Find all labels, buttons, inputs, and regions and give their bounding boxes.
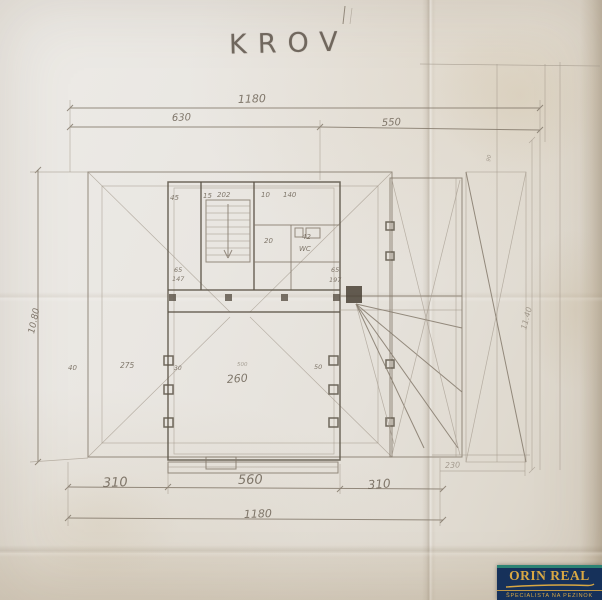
label-dim-top-left: 630 [172,112,191,124]
chimney [346,286,362,303]
agency-watermark: ORIN REAL ŠPECIALISTA NA PEZINOK [497,565,602,600]
blueprint-photo: KROV [0,0,602,600]
label-dim-room-202: 202 [217,191,231,199]
corridor-band [168,290,462,312]
label-dim-top-total: 1180 [238,92,266,106]
label-dim-bottom-mid: 560 [238,473,263,488]
label-dim-room-45: 45 [170,194,179,202]
label-dim-50: 50 [314,363,322,371]
label-dim-top-right: 550 [382,117,402,129]
label-dim-right-197: 197 [329,276,342,284]
label-dim-annex-230: 230 [445,460,461,470]
dimension-chain-top [67,100,543,470]
label-dim-room-10: 10 [261,191,270,199]
watermark-tagline: ŠPECIALISTA NA PEZINOK [497,590,602,599]
label-dim-left-65: 65 [174,266,182,274]
roof-fan-lines [356,180,462,455]
label-dim-275: 275 [120,361,135,370]
wall-posts [164,222,394,427]
label-dim-40: 40 [68,364,77,372]
terrace [168,455,530,476]
label-dim-bottom-left: 310 [103,475,128,491]
watermark-brand: ORIN REAL [497,569,602,583]
label-dim-right-65: 65 [331,266,339,274]
label-dim-bottom-right: 310 [367,476,391,492]
floor-plan-drawing: 1180 630 550 310 560 310 1180 10.80 11.4… [0,0,602,600]
construction-lines [343,6,600,470]
label-dim-bottom-total: 1180 [244,507,272,521]
label-dim-left-height: 10.80 [27,307,42,335]
label-dim-30: 30 [174,365,182,372]
stairs [206,200,250,262]
label-dim-left-147: 147 [172,275,185,283]
label-dim-room-15: 15 [203,192,212,200]
label-room-wc: WC [299,245,311,253]
watermark-underline-swoosh [504,583,596,589]
roof-outline [88,172,392,457]
label-dim-landing-20: 20 [264,237,273,245]
dimension-right [529,137,535,473]
label-room-note-260: 260 [226,372,248,386]
label-dim-wc-42: 42 [302,233,311,241]
label-dim-500: 500 [237,362,248,368]
label-dim-room-140: 140 [283,191,297,199]
label-dim-annex-90: 90 [486,154,493,162]
